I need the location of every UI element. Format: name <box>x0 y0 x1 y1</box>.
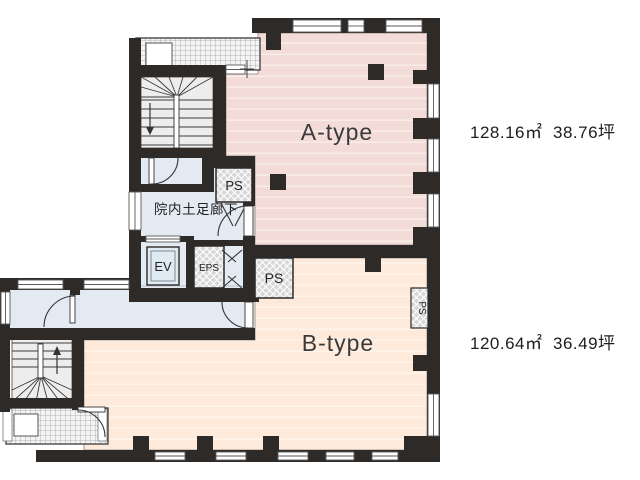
unit-b-area-tsubo: 36.49坪 <box>553 334 616 353</box>
stair-rail <box>174 95 179 148</box>
unit-b-label: B-type <box>302 330 374 356</box>
eps-label: EPS <box>199 263 219 274</box>
ps-mid-label: PS <box>265 270 284 286</box>
balcony-equipment <box>146 43 172 67</box>
unit-a-area-tsubo: 38.76坪 <box>553 123 616 142</box>
ps-east-label: PS <box>416 301 427 315</box>
unit-a-label: A-type <box>301 119 373 145</box>
floor-plan-drawing: A-type B-type 128.16㎡ 38.76坪 120.64㎡ 36.… <box>0 0 640 480</box>
elevator-label: EV <box>154 259 172 274</box>
floor-plan: A-type B-type 128.16㎡ 38.76坪 120.64㎡ 36.… <box>0 0 640 480</box>
corridor-label: 院内土足廊下 <box>154 201 238 217</box>
balcony-equipment <box>14 414 38 436</box>
unit-a-area-sqm: 128.16㎡ <box>470 123 543 142</box>
stairs-south <box>12 336 72 402</box>
unit-b-area-sqm: 120.64㎡ <box>470 334 543 353</box>
stairs-north <box>141 77 213 148</box>
ps-north-label: PS <box>225 178 243 193</box>
stair-rail <box>38 344 43 378</box>
